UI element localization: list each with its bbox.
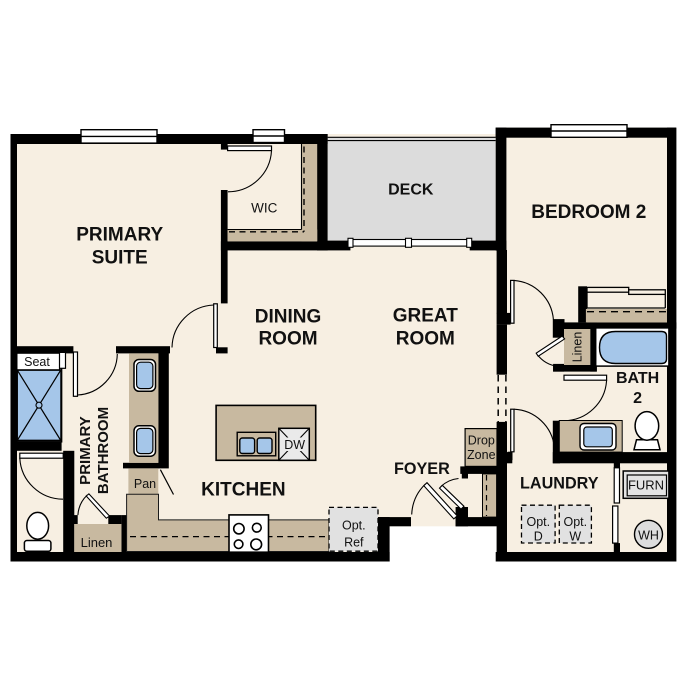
svg-text:BEDROOM 2: BEDROOM 2 xyxy=(531,202,646,223)
svg-text:BATH: BATH xyxy=(616,370,659,387)
svg-text:Drop: Drop xyxy=(468,434,495,448)
svg-text:WIC: WIC xyxy=(251,201,277,216)
svg-text:Opt.: Opt. xyxy=(526,515,550,529)
svg-text:W: W xyxy=(569,530,581,544)
svg-text:DINING: DINING xyxy=(255,307,322,328)
svg-text:WH: WH xyxy=(638,528,659,542)
svg-text:2: 2 xyxy=(633,390,642,407)
svg-text:BATHROOM: BATHROOM xyxy=(95,407,112,494)
svg-text:Opt.: Opt. xyxy=(563,515,587,529)
svg-text:Zone: Zone xyxy=(467,448,496,462)
svg-text:ROOM: ROOM xyxy=(258,329,317,350)
svg-text:Pan: Pan xyxy=(134,477,156,491)
svg-text:Opt.: Opt. xyxy=(342,519,366,533)
svg-text:ROOM: ROOM xyxy=(396,329,455,350)
svg-text:Seat: Seat xyxy=(24,355,50,369)
svg-text:FOYER: FOYER xyxy=(394,460,450,478)
svg-text:SUITE: SUITE xyxy=(92,247,148,268)
svg-text:Linen: Linen xyxy=(81,535,113,550)
svg-text:DECK: DECK xyxy=(388,182,434,199)
svg-text:Ref: Ref xyxy=(344,536,364,550)
svg-text:DW: DW xyxy=(284,438,305,452)
svg-text:KITCHEN: KITCHEN xyxy=(201,479,285,500)
svg-text:FURN: FURN xyxy=(628,478,664,493)
svg-text:LAUNDRY: LAUNDRY xyxy=(520,475,599,493)
svg-text:D: D xyxy=(534,530,543,544)
svg-text:Linen: Linen xyxy=(571,332,585,363)
svg-text:GREAT: GREAT xyxy=(393,306,458,327)
svg-text:PRIMARY: PRIMARY xyxy=(77,416,94,485)
svg-text:PRIMARY: PRIMARY xyxy=(76,225,163,246)
